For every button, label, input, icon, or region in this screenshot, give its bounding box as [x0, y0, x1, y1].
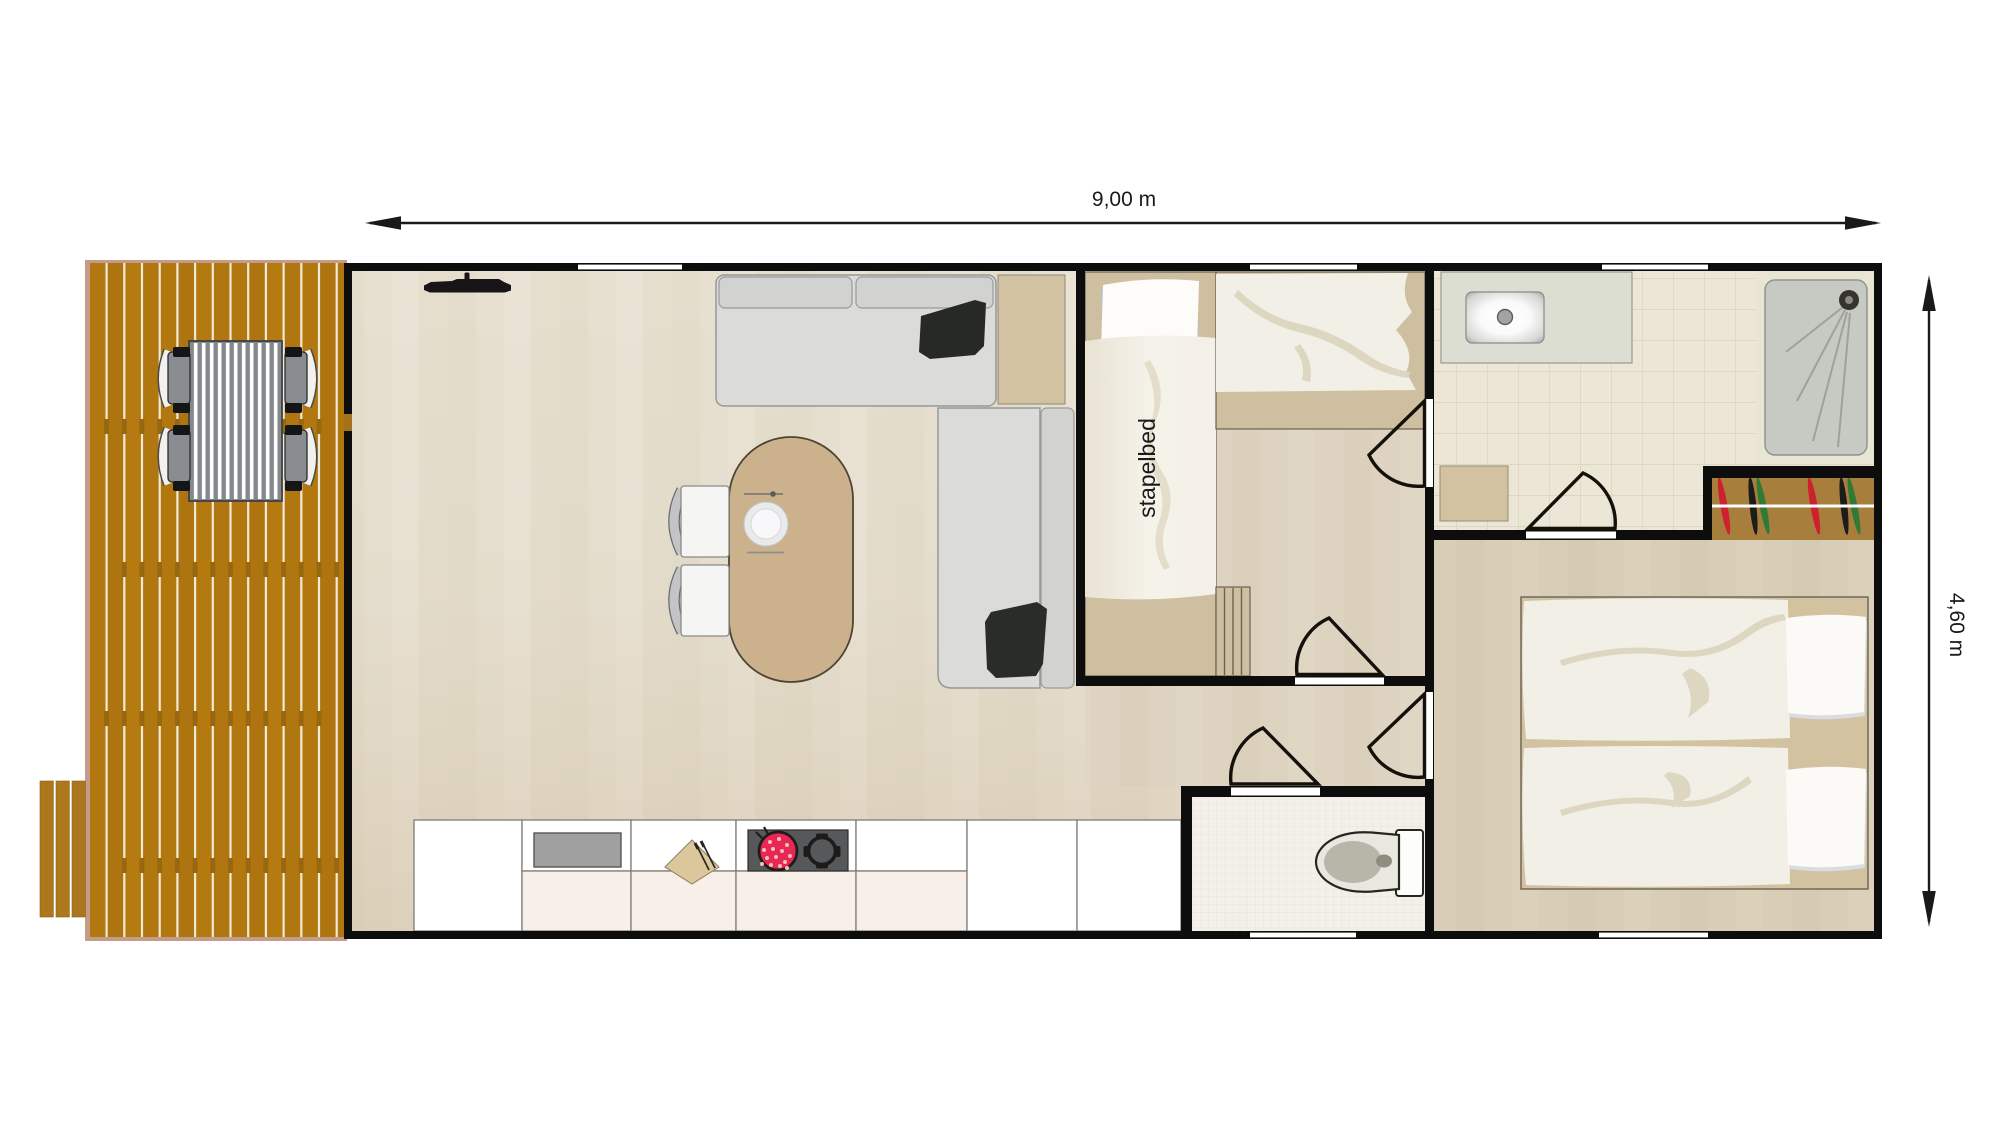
svg-text:stapelbed: stapelbed — [1134, 418, 1160, 518]
svg-text:9,00 m: 9,00 m — [1092, 188, 1156, 211]
svg-text:4,60 m: 4,60 m — [1945, 593, 1968, 657]
